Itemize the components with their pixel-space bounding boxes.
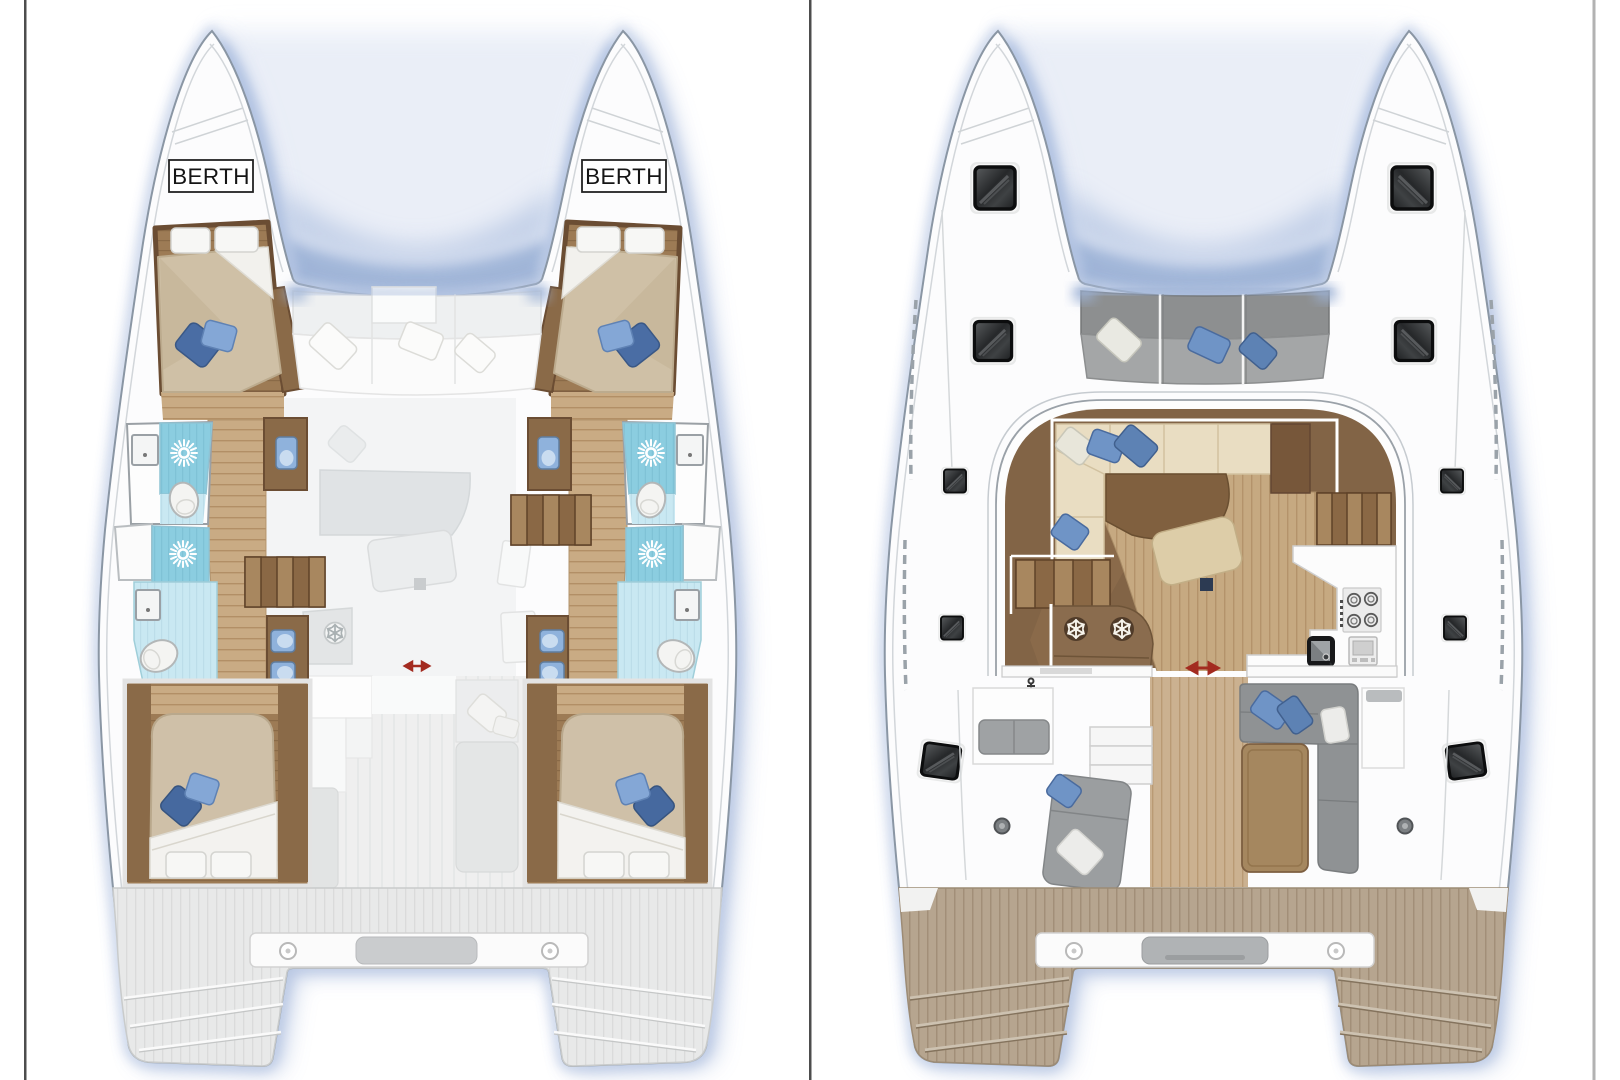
svg-text:BERTH: BERTH xyxy=(172,164,250,189)
svg-text:BERTH: BERTH xyxy=(585,164,663,189)
